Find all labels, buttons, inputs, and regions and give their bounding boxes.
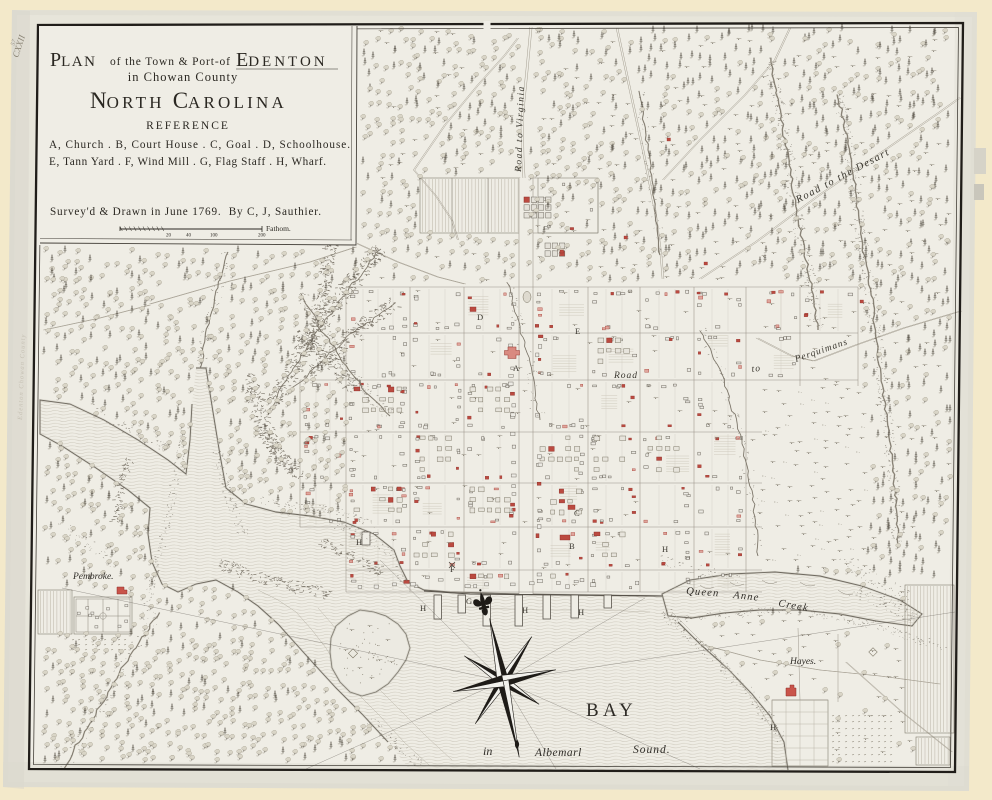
svg-text:Queen: Queen — [686, 586, 720, 599]
svg-text:A: A — [603, 700, 617, 721]
svg-text:G: G — [466, 596, 472, 606]
svg-text:B: B — [586, 700, 599, 721]
svg-text:E: E — [575, 326, 580, 336]
svg-text:Road: Road — [613, 371, 638, 381]
svg-text:H: H — [356, 537, 362, 547]
svg-text:A: A — [513, 363, 520, 373]
svg-text:Hayes.: Hayes. — [789, 657, 816, 667]
svg-text:Albemarl: Albemarl — [534, 747, 582, 759]
svg-text:in Chowan County: in Chowan County — [128, 70, 238, 84]
svg-text:40: 40 — [186, 234, 192, 239]
svg-text:A, Church . B, Court House . C: A, Church . B, Court House . C, Goal . D… — [49, 139, 350, 151]
svg-text:Fathom.: Fathom. — [266, 224, 291, 233]
svg-text:D: D — [477, 312, 483, 322]
svg-text:H: H — [662, 544, 668, 554]
svg-text:100: 100 — [210, 234, 218, 239]
svg-text:200: 200 — [258, 234, 266, 239]
svg-text:to: to — [751, 364, 762, 375]
svg-text:Pembroke.: Pembroke. — [72, 572, 114, 582]
svg-text:Sound.: Sound. — [633, 744, 671, 756]
svg-text:B: B — [569, 541, 575, 551]
svg-text:H: H — [522, 605, 528, 615]
svg-text:of the Town & Port-of: of the Town & Port-of — [110, 56, 230, 68]
svg-text:20: 20 — [166, 234, 172, 239]
svg-text:H: H — [578, 607, 584, 617]
svg-text:REFERENCE: REFERENCE — [146, 120, 230, 132]
svg-text:E, Tann Yard . F, Wind Mill .: E, Tann Yard . F, Wind Mill . G, Flag St… — [49, 156, 326, 168]
svg-text:in: in — [483, 744, 492, 758]
svg-text:Y: Y — [619, 700, 633, 721]
svg-text:Survey'd & Drawn in June 1769.: Survey'd & Drawn in June 1769. By C, J, … — [50, 206, 321, 218]
